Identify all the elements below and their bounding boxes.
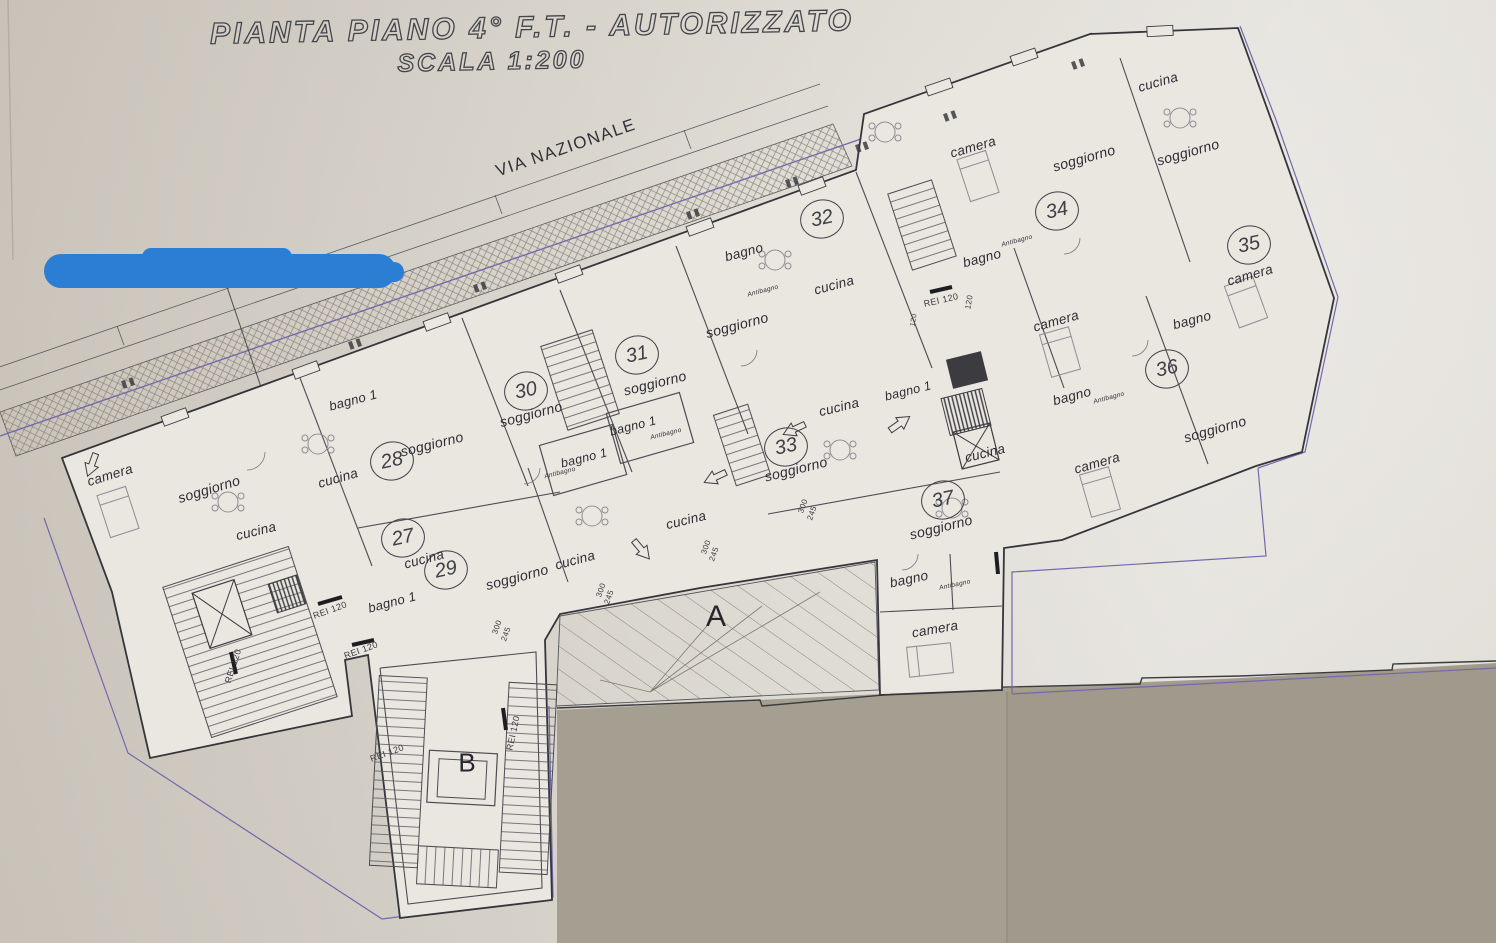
floor-plan-drawing (0, 0, 1496, 943)
plan-scale: SCALA 1:200 (397, 46, 587, 79)
terrace-label-a: A (706, 600, 726, 634)
marker-redaction (44, 254, 396, 288)
gray-exterior-area (557, 661, 1496, 943)
floor-plan-photo: PIANTA PIANO 4° F.T. - AUTORIZZATO SCALA… (0, 0, 1496, 943)
stair-block-label-b: B (458, 748, 475, 779)
